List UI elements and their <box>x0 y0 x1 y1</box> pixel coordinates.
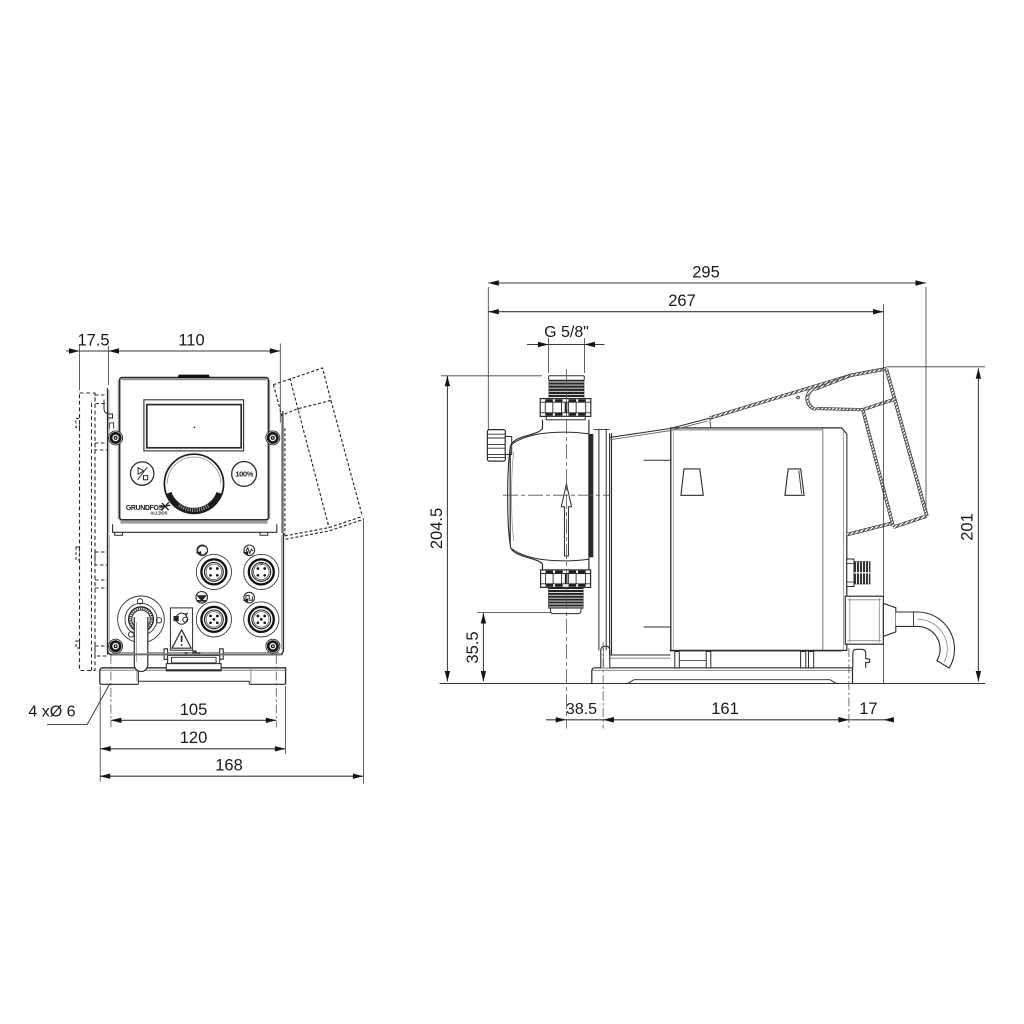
svg-text:35.5: 35.5 <box>464 631 482 663</box>
svg-text:38.5: 38.5 <box>566 701 597 718</box>
svg-text:105: 105 <box>180 701 208 719</box>
svg-text:ALLDOS: ALLDOS <box>150 511 167 516</box>
svg-text:295: 295 <box>692 264 720 282</box>
svg-text:100%: 100% <box>235 470 253 479</box>
svg-text:G 5/8": G 5/8" <box>544 324 589 341</box>
svg-text:168: 168 <box>215 757 243 775</box>
svg-text:267: 267 <box>668 292 696 310</box>
svg-text:201: 201 <box>959 513 977 541</box>
svg-text:17.5: 17.5 <box>77 332 109 350</box>
svg-text:110: 110 <box>178 332 204 350</box>
svg-text:4 xØ 6: 4 xØ 6 <box>28 704 75 721</box>
svg-text:120: 120 <box>180 729 208 747</box>
svg-text:204.5: 204.5 <box>428 508 446 549</box>
svg-text:161: 161 <box>711 700 739 718</box>
svg-text:17: 17 <box>859 700 877 718</box>
